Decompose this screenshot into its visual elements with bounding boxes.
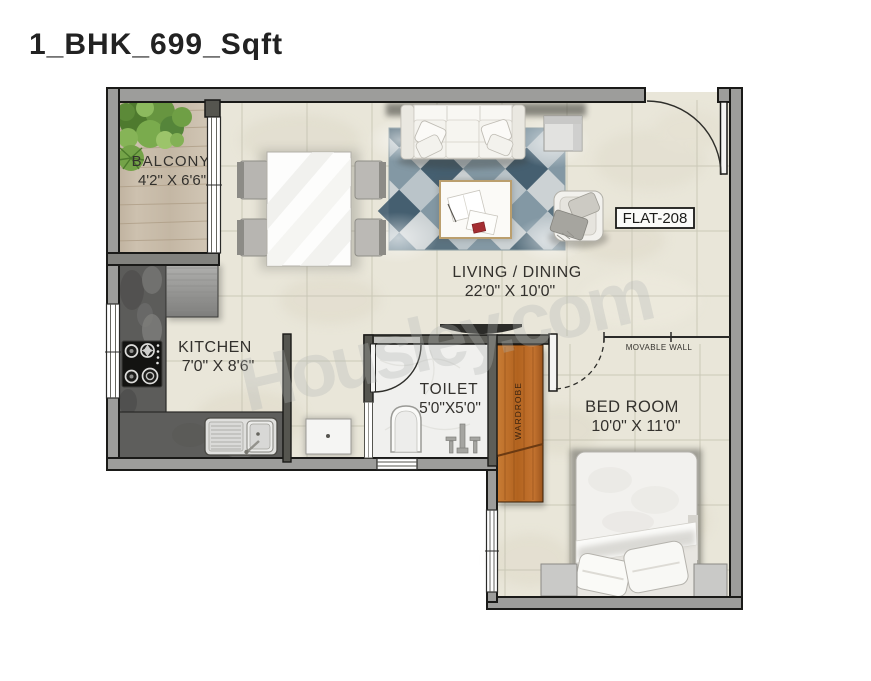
svg-text:MOVABLE WALL: MOVABLE WALL [626, 343, 693, 352]
svg-text:1_BHK_699_Sqft: 1_BHK_699_Sqft [29, 28, 283, 61]
svg-text:5'0"X5'0": 5'0"X5'0" [419, 400, 481, 417]
svg-text:10'0" X 11'0": 10'0" X 11'0" [591, 418, 680, 435]
svg-text:WARDROBE: WARDROBE [513, 382, 523, 440]
svg-text:FLAT-208: FLAT-208 [623, 210, 688, 227]
svg-text:BED ROOM: BED ROOM [585, 398, 679, 416]
svg-text:4'2" X 6'6": 4'2" X 6'6" [138, 172, 206, 189]
svg-text:BALCONY: BALCONY [132, 153, 211, 170]
